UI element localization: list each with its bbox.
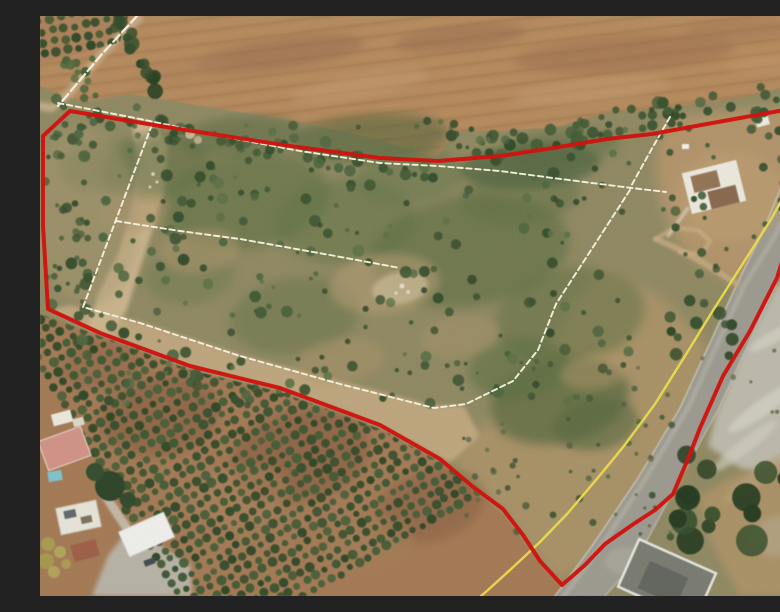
sensor-grain [40,16,780,596]
aerial-property-photo[interactable] [40,16,780,596]
satellite-canvas [40,16,780,596]
terrain-layer [40,16,780,596]
